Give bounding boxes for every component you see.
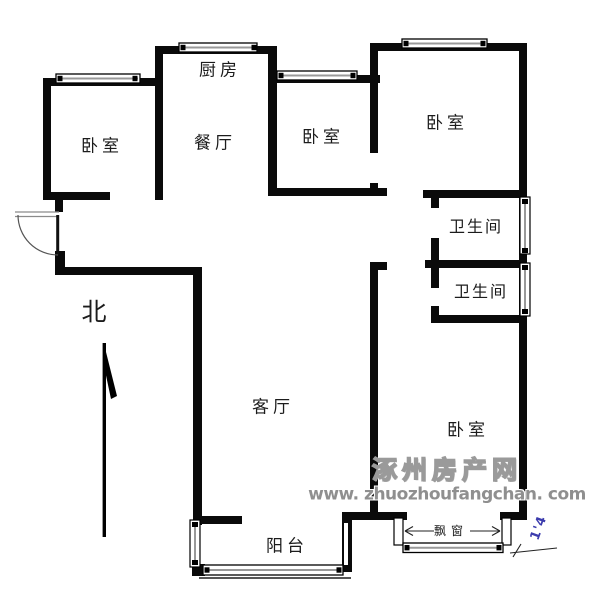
room-label-balcony: 阳台 (266, 538, 308, 555)
walls-bedroom-n (268, 43, 387, 196)
room-label-bathroom-lower: 卫生间 (454, 285, 508, 301)
watermark-site-name: 涿州房产网 (372, 459, 522, 484)
room-label-dining: 餐厅 (194, 135, 236, 152)
window-bedroom-n (277, 71, 357, 80)
window-bedroom-ne (402, 39, 487, 48)
room-label-kitchen: 厨房 (199, 62, 241, 79)
room-label-bedroom-ne: 卧室 (426, 115, 468, 132)
window-kitchen (179, 43, 257, 52)
bay-window-label: 飘窗 (434, 525, 468, 537)
window-bedroom-nw (56, 74, 140, 83)
window-bathroom-lower (520, 263, 530, 316)
room-label-bedroom-nw: 卧室 (81, 138, 123, 155)
room-label-bedroom-se: 卧室 (447, 422, 489, 439)
north-arrow (103, 343, 117, 537)
watermark-site-url: www. zhuozhoufangchan. com (308, 487, 586, 504)
room-label-bathroom-upper: 卫生间 (449, 220, 503, 236)
window-balcony-bottom (203, 565, 343, 575)
door-swing-arc (18, 215, 58, 255)
floorplan-canvas: 卧室 厨房 餐厅 卧室 卧室 卫生间 卫生间 客厅 卧室 阳台 北 飘窗 1'4… (0, 0, 600, 600)
window-bathroom-upper (520, 197, 530, 254)
room-label-bedroom-n: 卧室 (302, 129, 344, 146)
dimension-line (510, 544, 557, 557)
walls-bathrooms (425, 238, 527, 323)
entrance-door (15, 212, 59, 255)
window-balcony-left (190, 520, 200, 567)
room-label-living: 客厅 (252, 399, 294, 416)
north-label: 北 (81, 301, 106, 326)
